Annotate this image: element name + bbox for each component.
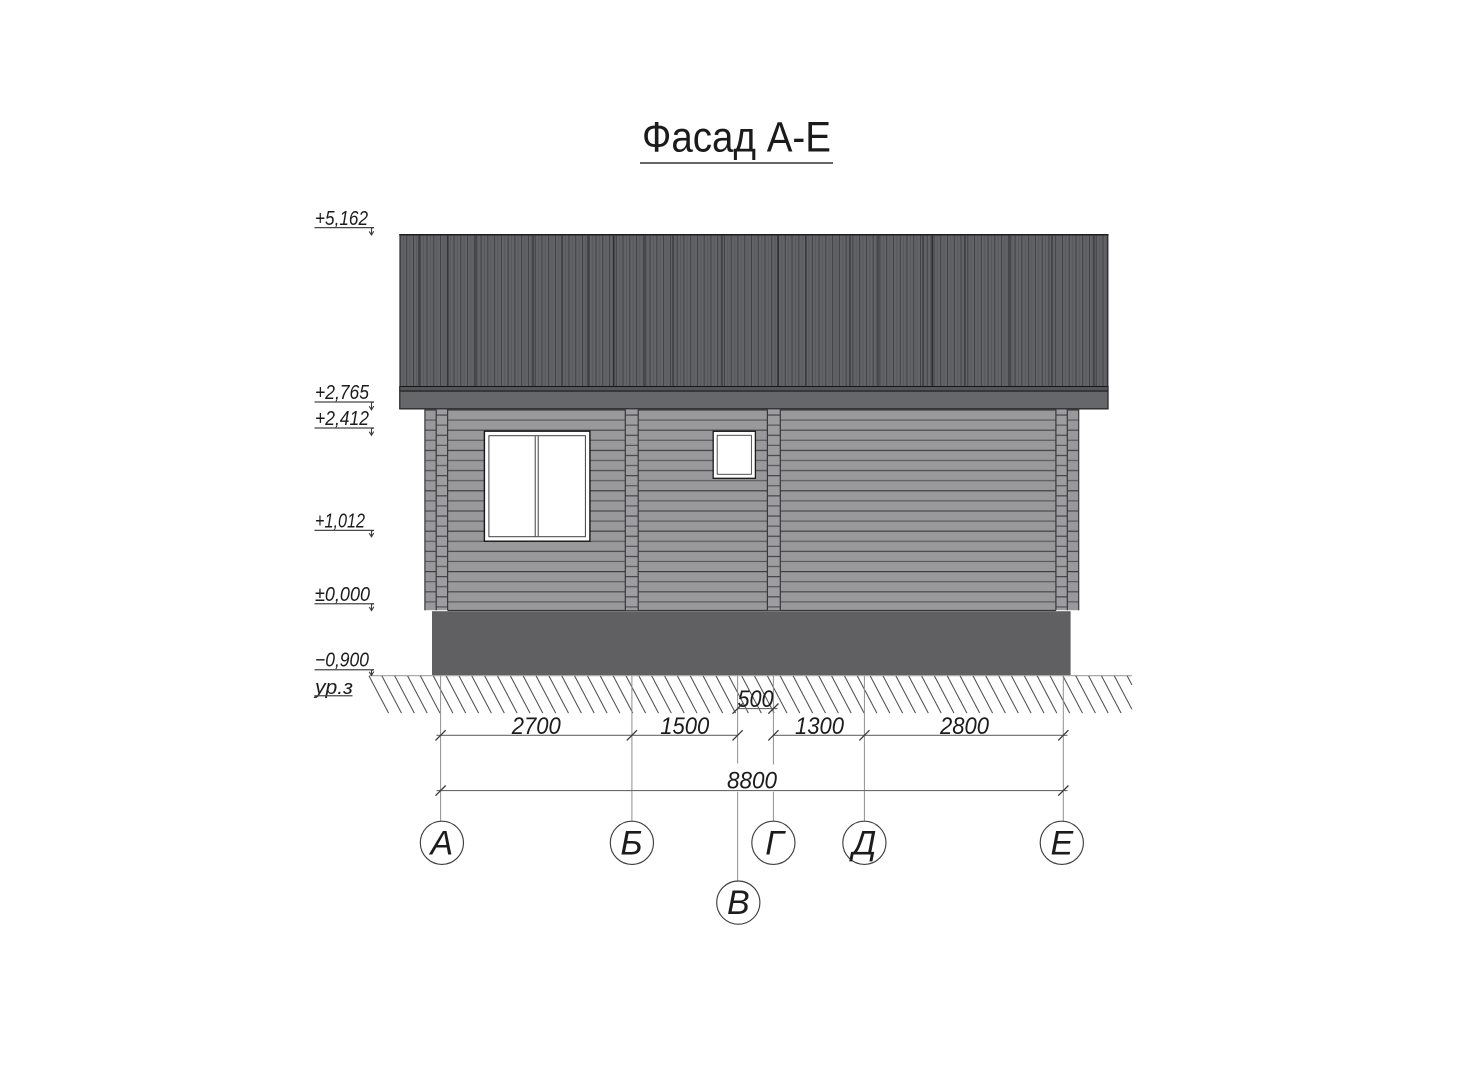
svg-text:2800: 2800 bbox=[939, 713, 990, 740]
svg-text:500: 500 bbox=[738, 686, 775, 713]
svg-text:Е: Е bbox=[1050, 824, 1073, 862]
svg-text:±0,000: ±0,000 bbox=[315, 584, 370, 606]
svg-text:Д: Д bbox=[848, 824, 876, 862]
svg-text:В: В bbox=[727, 884, 750, 922]
svg-text:+2,412: +2,412 bbox=[315, 408, 369, 430]
svg-text:Фасад А-Е: Фасад А-Е bbox=[642, 115, 831, 162]
svg-text:А: А bbox=[429, 824, 454, 862]
svg-text:+1,012: +1,012 bbox=[315, 511, 365, 533]
svg-text:+5,162: +5,162 bbox=[315, 208, 368, 230]
svg-text:Г: Г bbox=[765, 824, 786, 862]
svg-text:1500: 1500 bbox=[660, 713, 710, 740]
svg-text:1300: 1300 bbox=[795, 713, 845, 740]
svg-text:Б: Б bbox=[620, 824, 642, 862]
svg-text:−0,900: −0,900 bbox=[315, 650, 369, 672]
svg-text:8800: 8800 bbox=[727, 768, 778, 795]
svg-text:+2,765: +2,765 bbox=[315, 382, 370, 404]
svg-text:2700: 2700 bbox=[511, 713, 562, 740]
